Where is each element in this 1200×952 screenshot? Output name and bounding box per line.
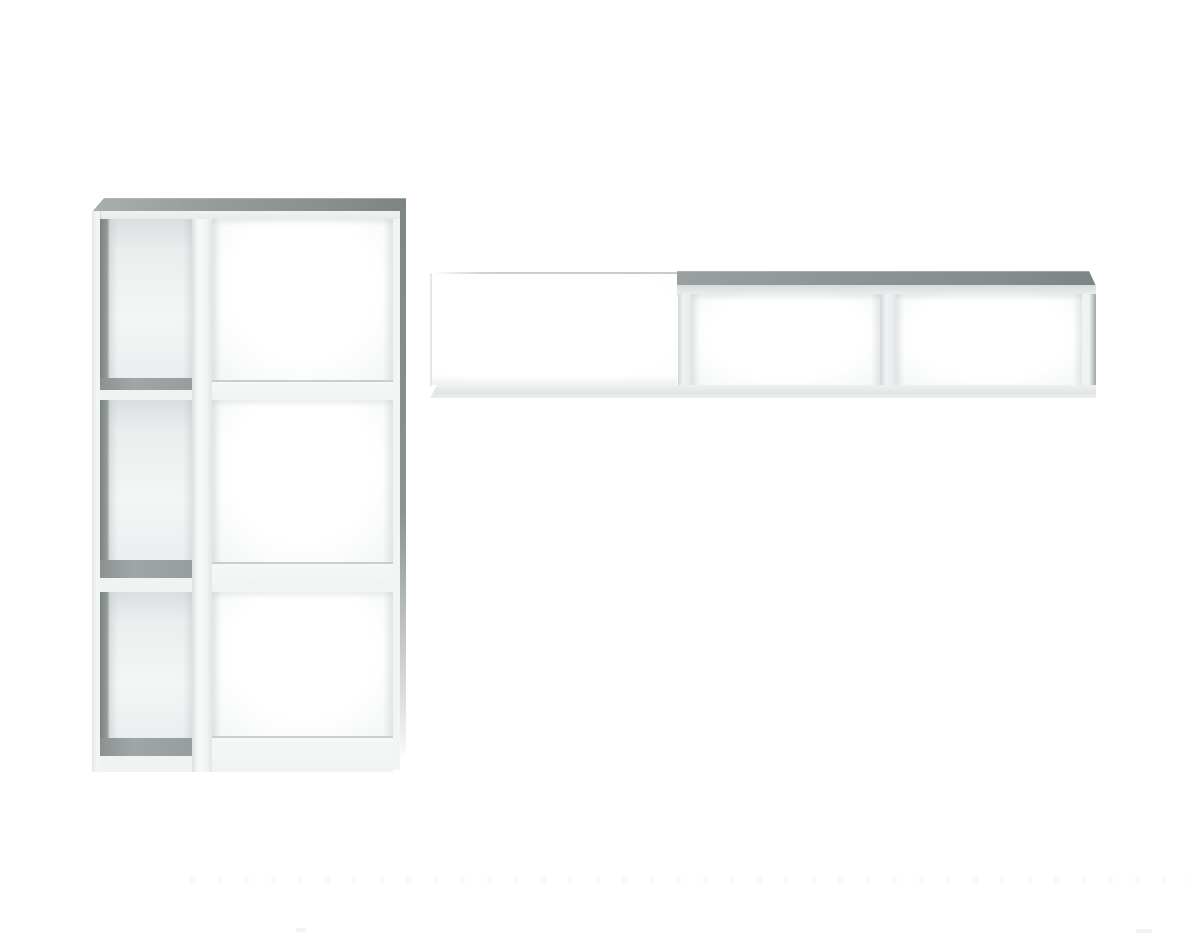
bookcase-compartment: [212, 592, 393, 736]
wall-shelf-open-section: [432, 274, 677, 385]
wall-shelf-top-panel: [677, 271, 1096, 286]
bookcase-shelf-front-edge: [100, 390, 192, 400]
bookcase-shelf-front-edge: [212, 562, 393, 592]
bookcase-right-side-panel: [393, 219, 400, 770]
bookcase-narrow-column: [100, 219, 192, 772]
wall-shelf: [430, 271, 1096, 398]
product-photo-scene: [0, 0, 1200, 952]
bookcase-center-stile: [192, 219, 212, 772]
wall-shelf-right-side-panel: [1082, 294, 1096, 385]
wall-shelf-compartment: [692, 294, 880, 385]
bookcase-top-panel: [92, 198, 406, 212]
bookcase-bottom-surface: [100, 738, 192, 756]
bookcase-shelf-surface: [100, 378, 192, 390]
bookcase-right-side-shadow-edge: [400, 211, 406, 759]
bookcase-bottom-front-edge: [100, 756, 192, 772]
bookcase-compartment: [212, 219, 393, 380]
bookcase: [92, 198, 406, 772]
bookcase-compartment: [212, 400, 393, 562]
bookcase-compartment: [100, 592, 192, 738]
compression-artifact-row: [190, 877, 1190, 883]
wall-shelf-bottom-panel: [430, 385, 1096, 398]
bookcase-compartment: [100, 400, 192, 560]
bookcase-shelf-front-edge: [212, 380, 393, 400]
compression-artifact-speck: [1136, 929, 1152, 933]
wall-shelf-compartment: [896, 294, 1082, 385]
wall-shelf-divider: [678, 294, 692, 385]
bookcase-bottom-front-edge: [212, 736, 393, 772]
bookcase-shelf-front-edge: [100, 578, 192, 592]
wall-shelf-divider: [880, 294, 896, 385]
bookcase-shelf-surface: [100, 560, 192, 578]
compression-artifact-speck: [296, 928, 306, 932]
bookcase-compartment: [100, 219, 192, 378]
bookcase-wide-column: [212, 219, 393, 772]
